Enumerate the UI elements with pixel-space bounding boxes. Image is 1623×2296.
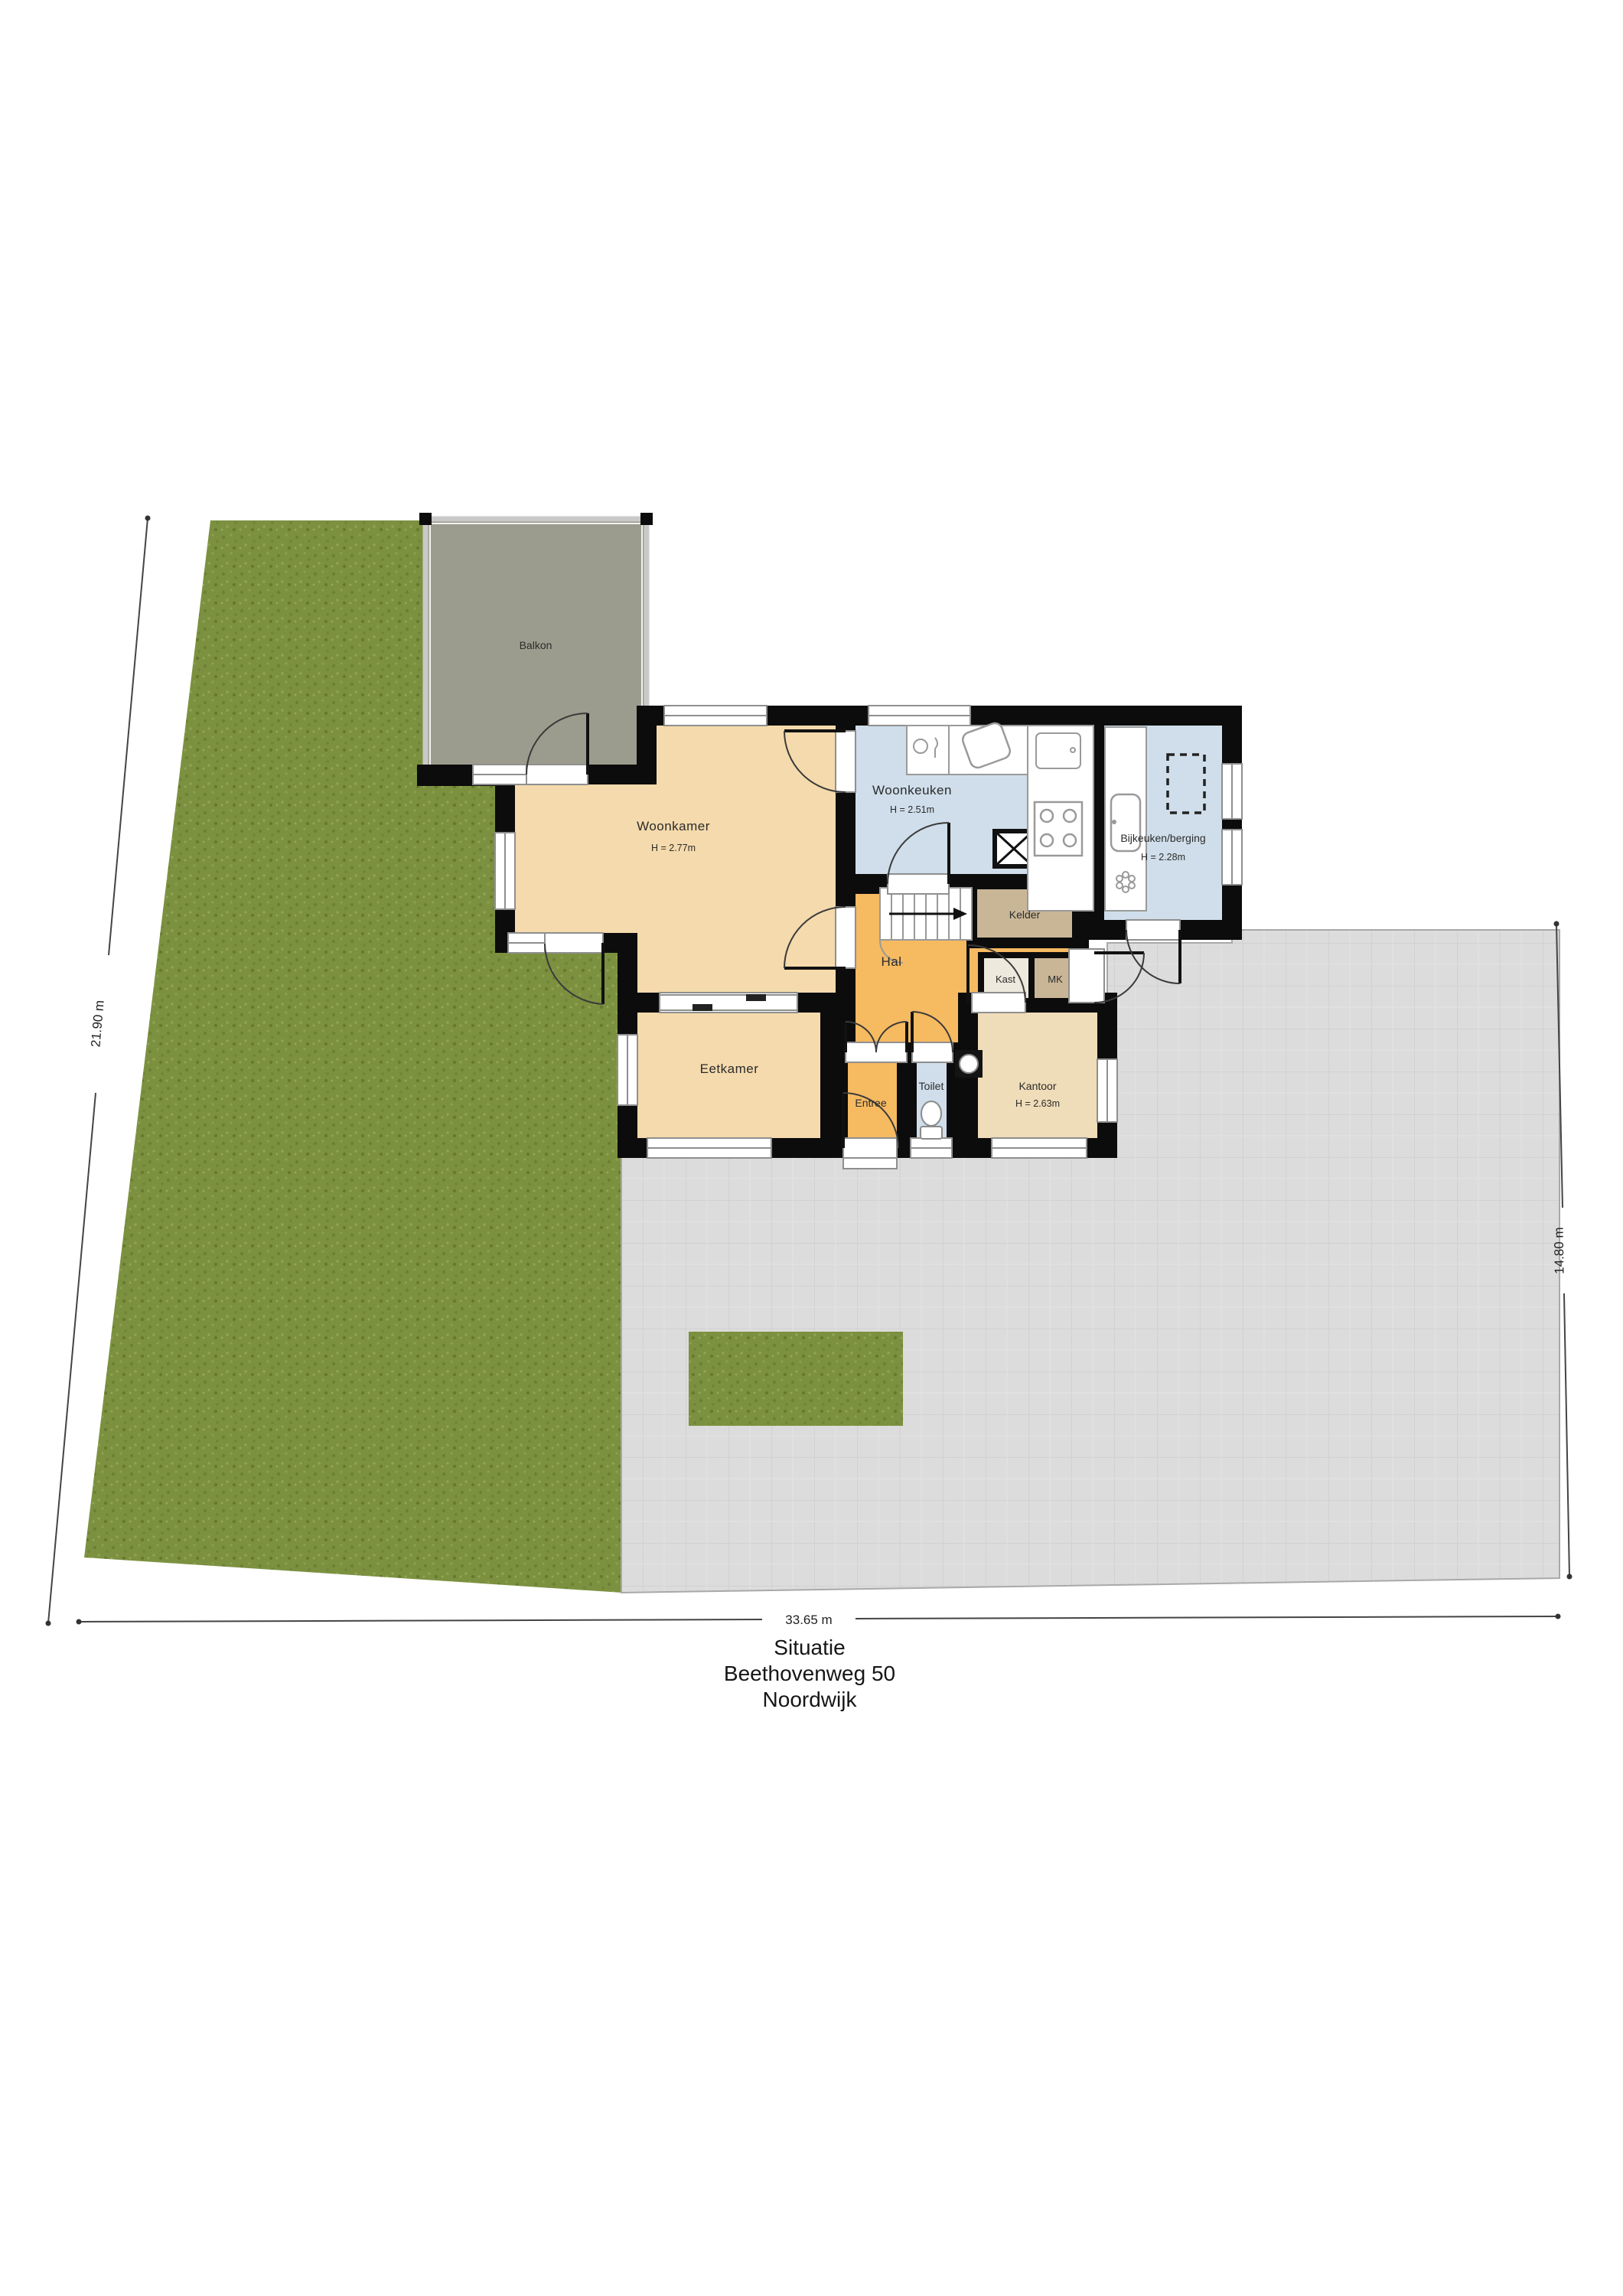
garden-patch	[689, 1332, 903, 1426]
window	[992, 1138, 1087, 1158]
hob-icon	[1035, 802, 1082, 856]
cutting-board-icon	[1036, 733, 1080, 768]
window	[618, 1035, 637, 1105]
balkon-label: Balkon	[520, 639, 552, 651]
door-opening	[1069, 949, 1104, 1003]
window	[664, 706, 767, 726]
woonkamer-height: H = 2.77m	[651, 843, 696, 853]
woonkeuken-height: H = 2.51m	[890, 804, 934, 815]
entree-label: Entree	[855, 1097, 886, 1109]
window	[508, 933, 545, 953]
door-opening	[888, 874, 949, 894]
floorplan-canvas: Balkon Woonkamer H = 2.77m Woonkeuken H …	[0, 0, 1623, 2296]
kast-label: Kast	[996, 974, 1015, 985]
window	[647, 1138, 771, 1158]
door-opening	[545, 933, 603, 953]
woonkamer-label: Woonkamer	[637, 819, 710, 833]
door-step	[843, 1158, 897, 1169]
mk-label: MK	[1048, 974, 1063, 985]
washbasin-icon	[955, 1050, 983, 1078]
title-city: Noordwijk	[763, 1688, 858, 1711]
door-opening	[912, 1042, 953, 1062]
dimension-right: 14.80 m	[1551, 1227, 1566, 1274]
kantoor-label: Kantoor	[1018, 1080, 1056, 1092]
passage-opening	[660, 993, 797, 1013]
door-opening	[836, 731, 855, 792]
door-opening	[972, 993, 1025, 1013]
kantoor-height: H = 2.63m	[1015, 1098, 1060, 1109]
eetkamer-label: Eetkamer	[700, 1062, 759, 1076]
bijkeuken-height: H = 2.28m	[1141, 852, 1185, 863]
door-opening	[1126, 920, 1180, 940]
toilet-fixture-icon	[921, 1101, 942, 1139]
woonkeuken-label: Woonkeuken	[872, 783, 952, 797]
floorplan-page: Balkon Woonkamer H = 2.77m Woonkeuken H …	[0, 0, 1623, 2296]
window	[495, 833, 515, 909]
hal-label: Hal	[881, 954, 901, 969]
window	[1097, 1059, 1117, 1122]
window	[1222, 764, 1242, 819]
window	[473, 765, 526, 784]
dimension-left: 21.90 m	[88, 1000, 106, 1048]
door-opening	[526, 765, 588, 784]
room-kantoor	[968, 1003, 1107, 1148]
kelder-label: Kelder	[1009, 908, 1041, 921]
door-opening	[843, 1138, 897, 1158]
door-opening	[836, 907, 855, 968]
toilet-label: Toilet	[919, 1080, 944, 1092]
title-situatie: Situatie	[774, 1636, 845, 1659]
dimension-bottom: 33.65 m	[785, 1613, 832, 1627]
window	[911, 1138, 952, 1158]
window	[869, 706, 970, 726]
window	[1222, 830, 1242, 885]
title-address: Beethovenweg 50	[724, 1662, 895, 1685]
bijkeuken-label: Bijkeuken/berging	[1120, 832, 1205, 844]
